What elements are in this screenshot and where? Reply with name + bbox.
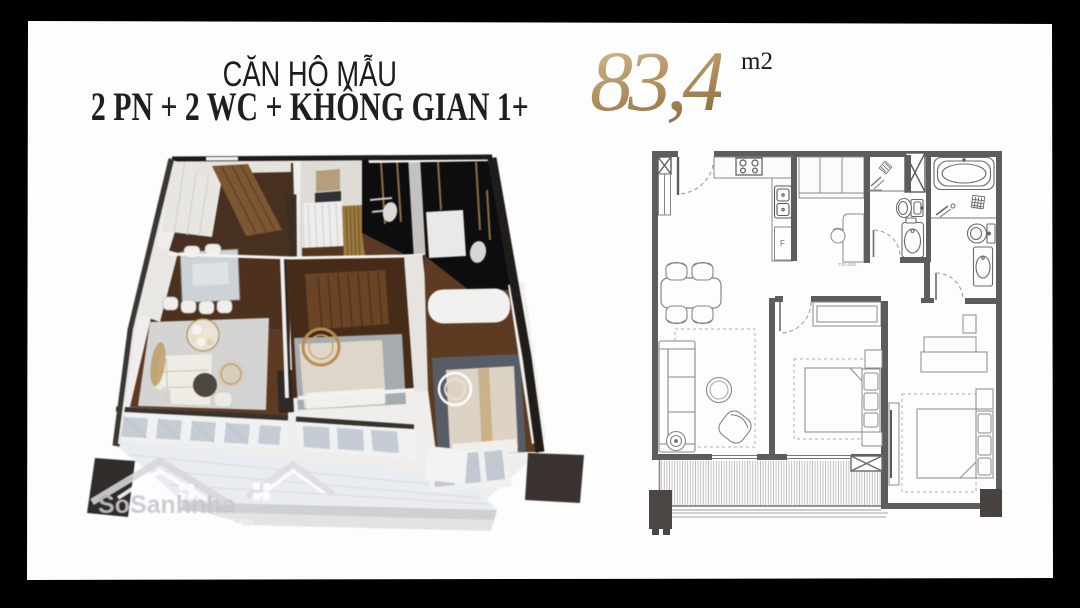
svg-text:Great choice for you: Great choice for you [172,516,253,526]
svg-text:F: F [780,239,785,248]
svg-text:.com: .com [204,501,234,516]
svg-text:729 4931: 729 4931 [838,262,857,267]
